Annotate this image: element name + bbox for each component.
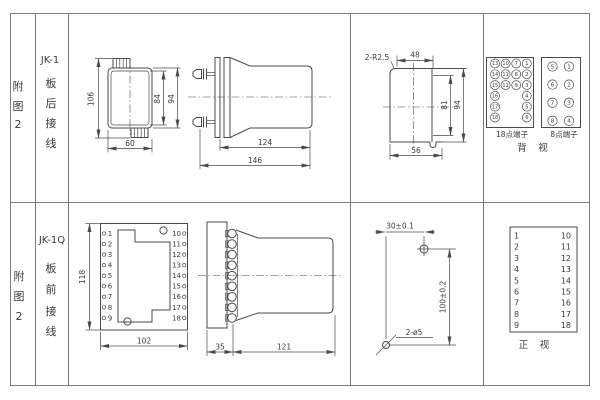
svg-text:12: 12	[172, 251, 181, 259]
table-left-col: 1 2 3 4 5 6 7 8 9	[514, 232, 519, 331]
svg-text:14: 14	[492, 72, 498, 78]
connector-bottom	[131, 128, 148, 138]
connector-hatch	[116, 59, 126, 69]
svg-text:15: 15	[172, 283, 181, 291]
svg-text:3: 3	[108, 251, 112, 259]
svg-text:15: 15	[561, 288, 571, 297]
svg-text:4: 4	[567, 119, 571, 125]
svg-text:30±0.1: 30±0.1	[386, 222, 414, 231]
dim-121: 121	[233, 315, 335, 356]
terminals-left: 1 2 3 4 5 6 7 8 9	[102, 230, 113, 322]
connector-top	[113, 59, 130, 69]
dim-60: 60	[108, 130, 152, 153]
svg-text:10: 10	[502, 61, 508, 67]
dim-56: 56	[390, 144, 442, 160]
svg-text:5: 5	[514, 276, 519, 285]
svg-text:9: 9	[108, 314, 112, 322]
dim-81: 81	[433, 76, 454, 136]
model-label: JK-1Q	[38, 235, 65, 246]
terminals-right: 10 11 12 13 14 15 16 17 18	[172, 230, 186, 322]
svg-text:14: 14	[172, 272, 181, 280]
svg-text:118: 118	[78, 270, 87, 285]
front-plate	[207, 222, 227, 328]
fig-char: 图	[14, 290, 25, 303]
svg-text:84: 84	[153, 94, 162, 104]
dim-48: 48	[397, 51, 433, 69]
fig-char: 附	[13, 79, 24, 93]
jk1-side-view-drawing: 124 146	[188, 58, 332, 170]
svg-text:56: 56	[411, 146, 421, 155]
svg-text:124: 124	[258, 138, 273, 147]
svg-text:3: 3	[525, 83, 528, 89]
svg-text:7: 7	[551, 101, 555, 107]
drill-layout-drawing: 30±0.1 100±0.2 2-ø5	[375, 222, 456, 356]
svg-text:102: 102	[137, 337, 152, 346]
svg-text:6: 6	[525, 115, 528, 121]
svg-text:94: 94	[453, 100, 462, 110]
svg-text:8: 8	[514, 310, 519, 319]
svg-text:18: 18	[492, 115, 498, 121]
svg-text:2-R2.5: 2-R2.5	[365, 53, 390, 62]
svg-text:2: 2	[514, 243, 519, 252]
mount-char: 板	[46, 76, 57, 90]
terminal-col4: 1 2 3 4 5 6	[522, 59, 531, 122]
drawing-sheet: 附 图 2 JK-1 板 后 接 线 附 图 2 JK-1Q 板 前 接 线 1…	[0, 0, 600, 400]
svg-text:14: 14	[561, 276, 571, 285]
svg-text:9: 9	[515, 83, 518, 89]
svg-text:1: 1	[567, 64, 571, 70]
svg-text:6: 6	[514, 288, 519, 297]
svg-text:17: 17	[172, 304, 181, 312]
svg-text:10: 10	[172, 230, 181, 238]
svg-text:5: 5	[108, 272, 112, 280]
flange-plate	[215, 58, 220, 138]
svg-text:2: 2	[108, 241, 112, 249]
svg-text:2: 2	[525, 72, 528, 78]
mount-char: 接	[46, 305, 57, 318]
svg-text:121: 121	[277, 343, 292, 352]
block8-label: 8点端子	[550, 129, 578, 139]
relay-body	[230, 58, 312, 138]
mount-hole	[160, 227, 167, 234]
svg-text:16: 16	[561, 299, 571, 308]
profile-tab	[430, 142, 442, 148]
radius-note: 2-R2.5	[365, 53, 394, 68]
svg-text:5: 5	[525, 104, 528, 110]
svg-text:13: 13	[172, 262, 181, 270]
rear-view-label: 背 视	[517, 142, 549, 154]
svg-text:1: 1	[525, 61, 528, 67]
svg-text:12: 12	[561, 254, 571, 263]
svg-text:81: 81	[440, 100, 449, 110]
rear-terminal-block-18: 13 14 15 16 17 18 10 11 12 7 8 9 1 2 3 4…	[487, 58, 534, 140]
jk1-rear-view-drawing: 106 84 94 60	[87, 59, 181, 153]
svg-text:11: 11	[561, 243, 571, 252]
mount-char: 线	[46, 136, 57, 150]
svg-text:8: 8	[515, 72, 518, 78]
svg-text:17: 17	[561, 310, 571, 319]
svg-text:9: 9	[514, 321, 519, 330]
svg-text:1: 1	[514, 232, 519, 241]
front-view-label: 正 视	[519, 339, 551, 351]
svg-text:6: 6	[551, 83, 555, 89]
svg-text:60: 60	[125, 139, 135, 148]
mount-char: 板	[46, 261, 57, 275]
svg-text:48: 48	[410, 51, 420, 60]
dim-30: 30±0.1	[375, 222, 435, 340]
svg-text:100±0.2: 100±0.2	[439, 281, 448, 314]
mount-char: 前	[46, 282, 57, 296]
svg-text:94: 94	[167, 94, 176, 104]
svg-text:146: 146	[248, 156, 263, 165]
svg-text:4: 4	[108, 262, 113, 270]
rear-terminal-block-8: 5 6 7 8 1 2 3 4 8点端子	[542, 58, 581, 140]
fig-char: 附	[14, 269, 25, 283]
terminal-right-col: 1 2 3 4	[564, 62, 573, 126]
stud-top	[193, 69, 215, 80]
svg-text:10: 10	[561, 232, 571, 241]
svg-text:2: 2	[567, 83, 571, 89]
body-outline	[118, 230, 170, 322]
dim-118: 118	[78, 224, 100, 331]
svg-text:2-ø5: 2-ø5	[406, 328, 423, 337]
table-right-col: 10 11 12 13 14 15 16 17 18	[561, 232, 571, 331]
svg-text:16: 16	[172, 293, 181, 301]
svg-text:11: 11	[502, 72, 508, 78]
block18-label: 18点端子	[496, 129, 529, 139]
terminal-col2: 10 11 12	[501, 59, 510, 90]
hole-bottom: 2-ø5	[376, 328, 433, 355]
dim-35: 35	[207, 324, 233, 356]
svg-text:18: 18	[561, 321, 571, 330]
mount-char: 线	[46, 324, 57, 338]
dim-102: 102	[101, 332, 188, 351]
dim-146: 146	[200, 129, 310, 169]
svg-text:106: 106	[87, 92, 96, 107]
svg-text:7: 7	[515, 61, 518, 67]
fig-char: 图	[13, 100, 24, 113]
svg-text:13: 13	[492, 61, 498, 67]
svg-text:7: 7	[108, 293, 112, 301]
svg-text:13: 13	[561, 265, 571, 274]
flange-plate2	[224, 58, 230, 138]
stud-bottom	[193, 117, 215, 128]
fig-char: 2	[16, 310, 23, 323]
front-terminal-table: 1 2 3 4 5 6 7 8 9 10 11 12 13 14 15 16 1…	[510, 227, 577, 351]
svg-text:16: 16	[492, 94, 498, 100]
svg-text:7: 7	[514, 299, 519, 308]
svg-text:8: 8	[108, 304, 112, 312]
diagram-svg: 附 图 2 JK-1 板 后 接 线 附 图 2 JK-1Q 板 前 接 线 1…	[0, 0, 600, 400]
dim-100: 100±0.2	[390, 249, 457, 345]
svg-text:3: 3	[567, 101, 571, 107]
mount-char: 后	[46, 97, 57, 110]
terminal-left-col: 5 6 7 8	[548, 62, 557, 126]
svg-text:18: 18	[172, 314, 181, 322]
svg-text:6: 6	[108, 283, 113, 291]
jk1q-side-view-drawing: 35 121	[198, 222, 343, 356]
mount-char: 接	[46, 117, 57, 130]
svg-text:12: 12	[502, 83, 508, 89]
svg-text:3: 3	[514, 254, 519, 263]
panel-cutout-drawing: 2-R2.5 48 81 94 56	[365, 51, 467, 160]
model-label: JK-1	[40, 55, 59, 66]
sidebar-row2: 附 图 2 JK-1Q 板 前 接 线	[14, 235, 66, 338]
svg-text:8: 8	[551, 119, 555, 125]
terminal-col3: 7 8 9	[512, 59, 521, 90]
svg-text:11: 11	[172, 241, 181, 249]
terminal-col1: 13 14 15 16 17 18	[491, 59, 500, 122]
svg-text:35: 35	[215, 343, 225, 352]
fig-char: 2	[15, 118, 22, 131]
jk1q-front-view-drawing: 1 2 3 4 5 6 7 8 9 10 11 12 13 14 15 16 1…	[78, 224, 188, 351]
terminal-box	[542, 58, 581, 128]
svg-text:1: 1	[108, 230, 112, 238]
svg-text:17: 17	[492, 104, 498, 110]
svg-text:4: 4	[514, 265, 519, 274]
hole-top	[417, 242, 456, 256]
svg-text:5: 5	[551, 64, 555, 70]
connector-hatch	[134, 128, 144, 138]
svg-text:4: 4	[525, 94, 528, 100]
svg-text:15: 15	[492, 83, 498, 89]
